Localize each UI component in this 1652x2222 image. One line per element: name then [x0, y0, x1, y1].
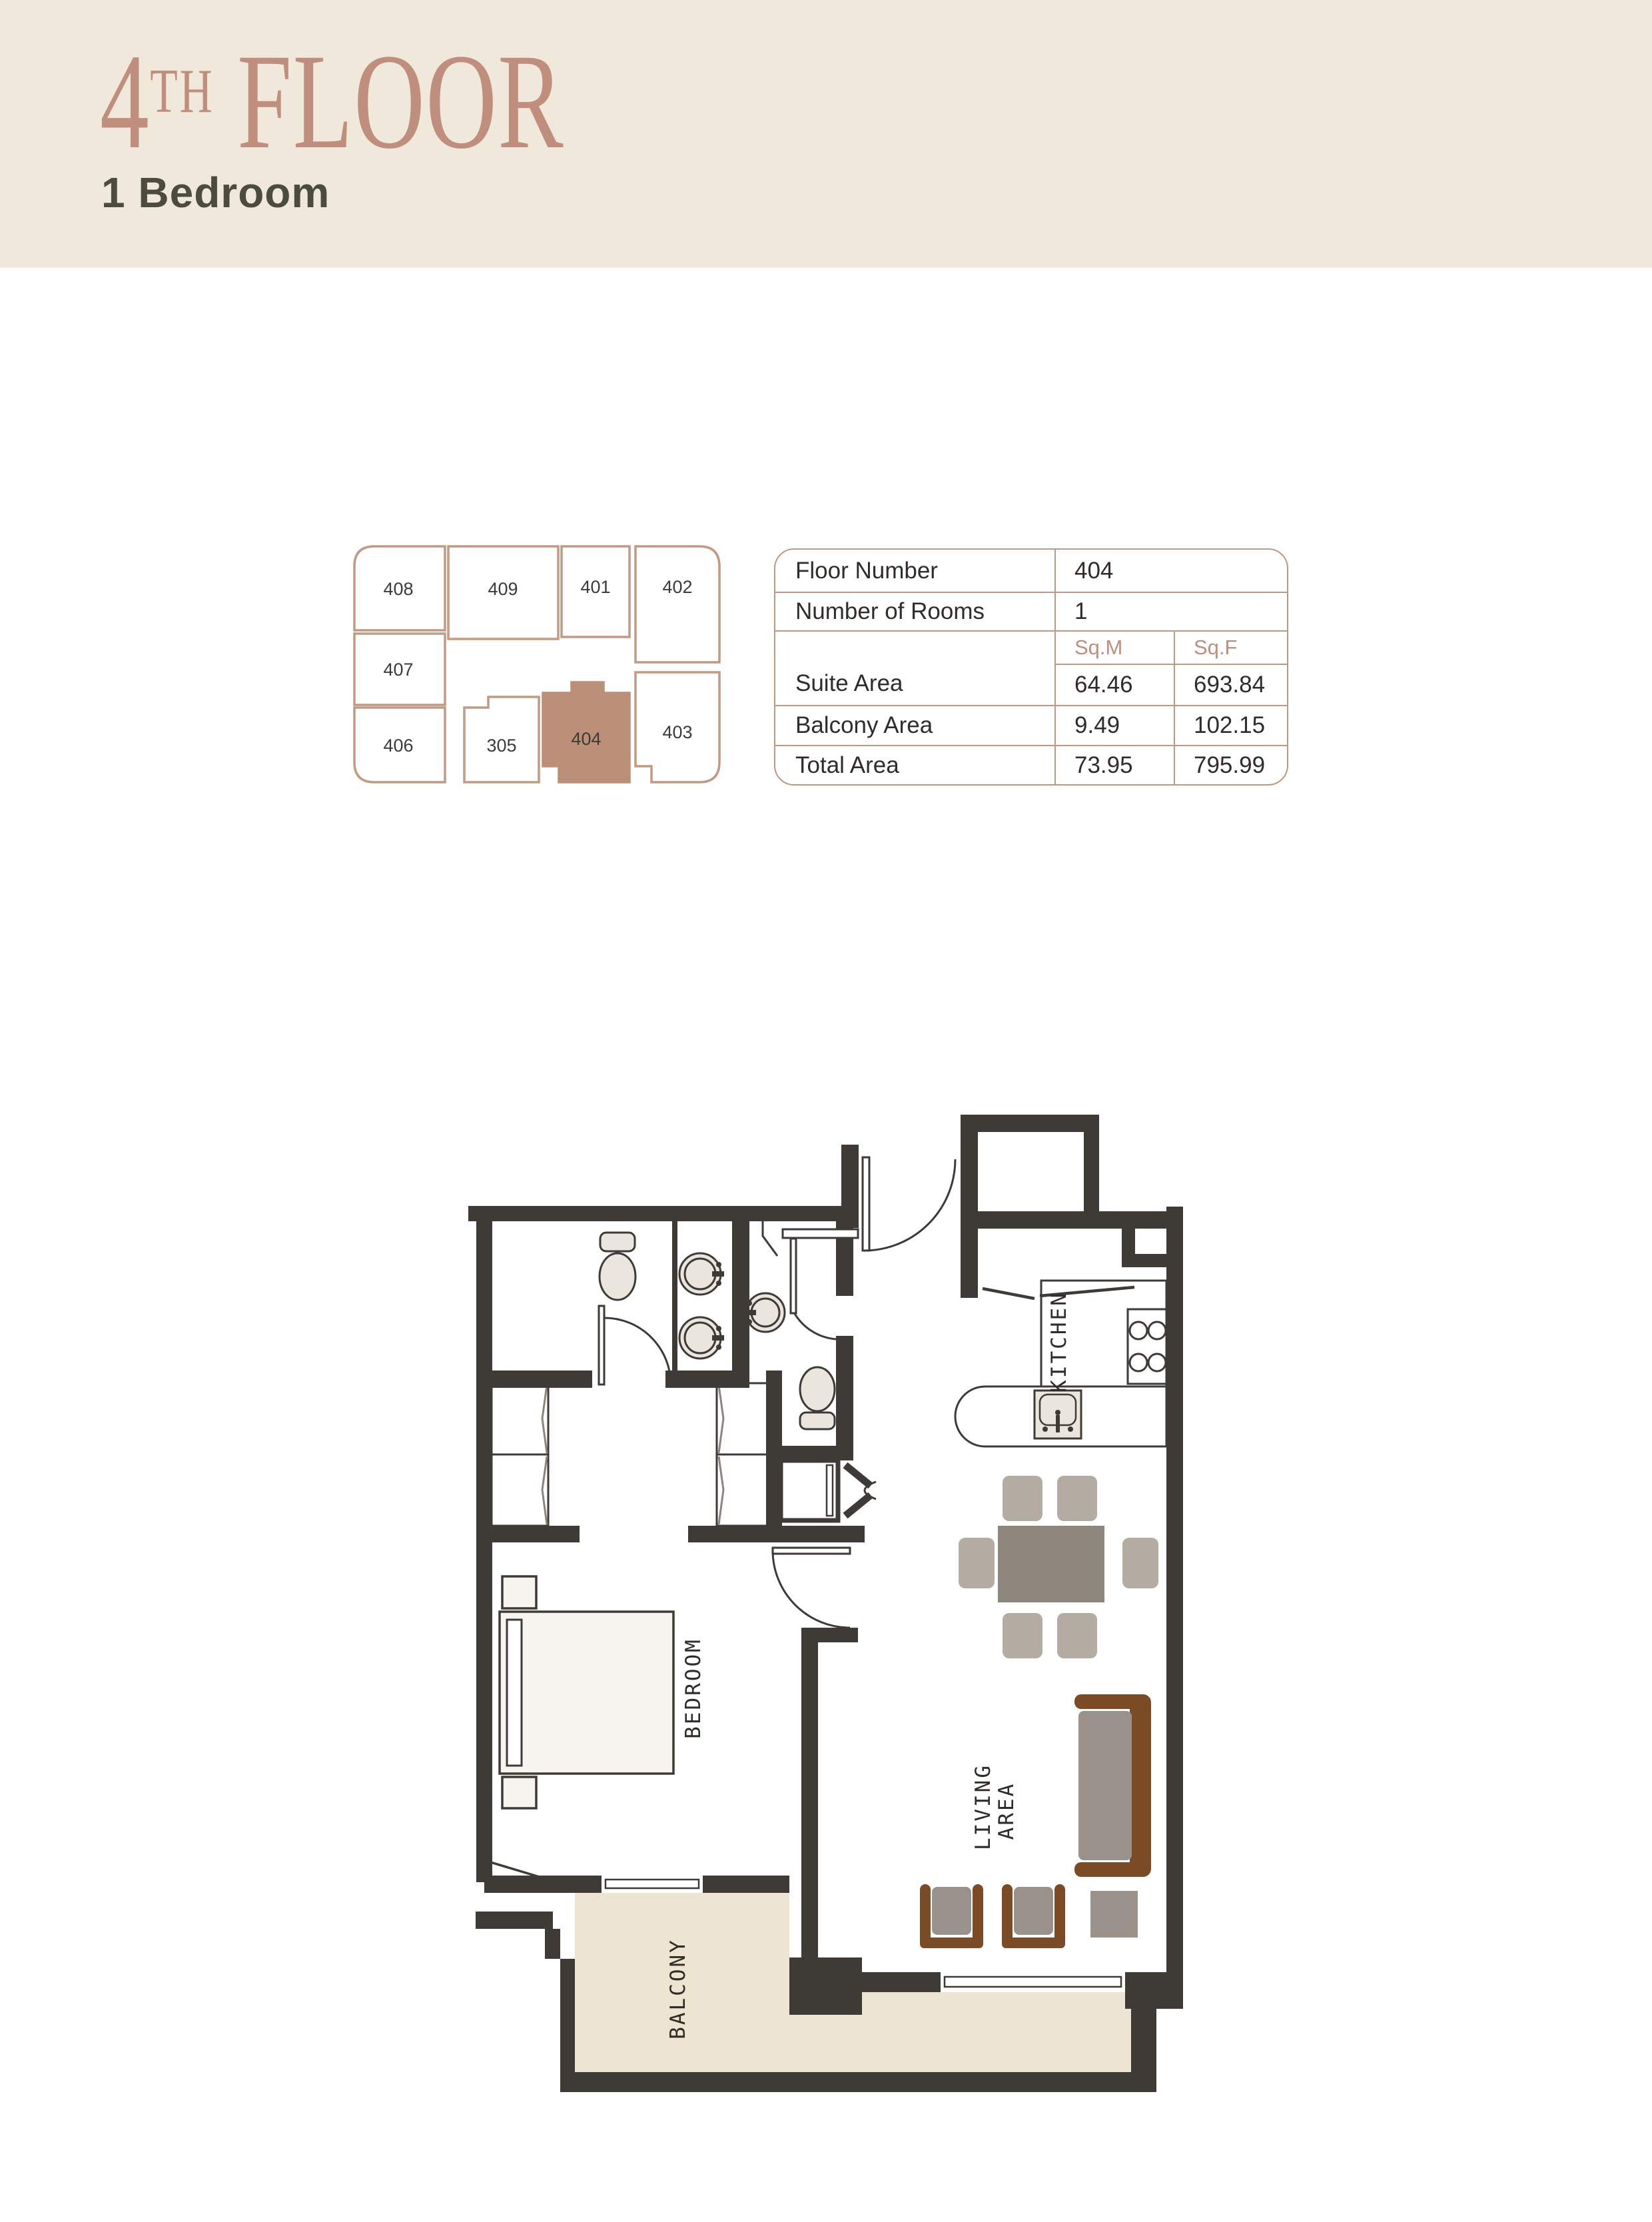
unit-402-number: 402: [662, 577, 692, 597]
header-band: 4THFLOOR 1 Bedroom: [0, 0, 1652, 268]
unit-409-number: 409: [488, 579, 518, 599]
armchair: [1002, 1884, 1065, 1948]
balcony-area-sqf: 102.15: [1175, 706, 1287, 746]
wc-toilet-symbol: [600, 1233, 635, 1300]
page-title: 4THFLOOR: [100, 27, 564, 177]
bed: [500, 1576, 673, 1808]
total-area-sqf: 795.99: [1175, 746, 1287, 784]
balcony-area-label: Balcony Area: [775, 706, 1056, 746]
unit-407-number: 407: [383, 660, 413, 680]
living-area-label-line1: LIVING: [971, 1764, 995, 1850]
nightstand: [502, 1777, 536, 1808]
wardrobe-closets: [492, 1383, 770, 1526]
floor-number-label: Floor Number: [775, 550, 1056, 593]
nightstand: [502, 1576, 536, 1608]
suite-area-label: Suite Area: [775, 632, 1056, 706]
kitchen-sink-symbol: [1034, 1390, 1081, 1438]
hall-shelf: [783, 1229, 858, 1238]
unit-403-number: 403: [662, 722, 692, 742]
armchair: [920, 1884, 983, 1948]
sqf-column-header: Sq.F: [1175, 632, 1287, 665]
living-balcony-window: [945, 1977, 1121, 1987]
kitchen-island: [955, 1387, 1166, 1446]
rooms-label: Number of Rooms: [775, 593, 1056, 632]
page-subtitle: 1 Bedroom: [101, 168, 330, 217]
key-plan: 408 409 401 402 407 406 305 404 403: [352, 545, 725, 786]
unit-401-number: 401: [580, 577, 610, 597]
unit-408-number: 408: [383, 579, 413, 599]
side-table: [1090, 1891, 1138, 1938]
suite-area-sqm: 64.46: [1056, 665, 1175, 706]
unit-info-table: Floor Number 404 Number of Rooms 1 Suite…: [774, 548, 1288, 786]
floor-number-value: 404: [1056, 550, 1287, 593]
unit-402-shape: [635, 546, 719, 662]
floorplan-page: 4THFLOOR 1 Bedroom 408 409 401 402 407 4…: [0, 0, 1652, 2222]
bathroom-toilet-symbol: [800, 1367, 835, 1429]
entry-door-leaf: [863, 1157, 869, 1251]
stove-symbol: [1128, 1309, 1166, 1384]
entry-door-swing: [866, 1159, 955, 1251]
rooms-value: 1: [1056, 593, 1287, 632]
bathroom-door-leaf: [791, 1239, 796, 1313]
unit-404-number: 404: [571, 729, 601, 749]
unit-406-number: 406: [383, 736, 413, 756]
suite-area-sqf: 693.84: [1175, 665, 1287, 706]
apartment-floor-plan: KITCHEN BEDROOM LIVING AREA BALCONY: [468, 1105, 1188, 2104]
vanity-sinks-symbol: [679, 1253, 724, 1359]
bedroom-door-leaf: [773, 1548, 850, 1554]
entry-cabinet: [781, 1460, 876, 1520]
kitchen-label: KITCHEN: [1047, 1291, 1071, 1392]
sqm-column-header: Sq.M: [1056, 632, 1175, 665]
title-ordinal-suffix: TH: [150, 57, 214, 126]
dining-set: [959, 1476, 1158, 1658]
sofa: [1074, 1694, 1151, 1877]
balcony-label: BALCONY: [666, 1938, 690, 2039]
bedroom-balcony-window: [606, 1880, 699, 1888]
unit-305-number: 305: [486, 736, 516, 756]
dining-table: [998, 1526, 1104, 1602]
total-area-label: Total Area: [775, 746, 1056, 784]
total-area-sqm: 73.95: [1056, 746, 1175, 784]
title-floor-number: 4: [100, 26, 150, 177]
bedroom-label: BEDROOM: [681, 1638, 705, 1739]
bathroom-door-swing: [794, 1313, 836, 1339]
wc-door-swing: [604, 1318, 671, 1385]
title-floor-word: FLOOR: [237, 26, 564, 177]
living-area-label-line2: AREA: [995, 1782, 1019, 1840]
balcony-area-sqm: 9.49: [1056, 706, 1175, 746]
kitchen-door-ajar: [983, 1289, 1034, 1299]
wc-door-leaf: [599, 1306, 604, 1385]
bedroom-door-swing: [773, 1550, 850, 1628]
bathroom-sink-symbol: [744, 1293, 785, 1332]
